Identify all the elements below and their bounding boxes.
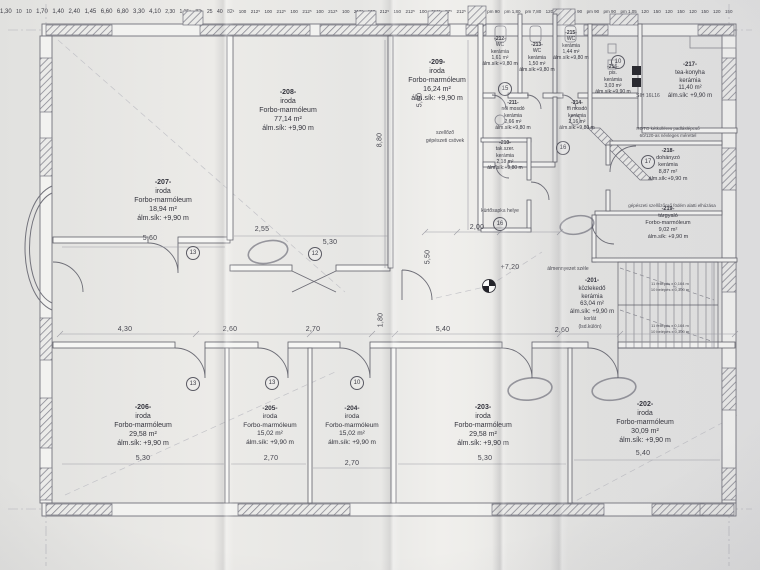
dim-label: 2,00 [470, 224, 484, 231]
stair-note-lower-1: 11 fellépés x 0,164 m [651, 323, 689, 328]
note-sih: SIH 16L16 [636, 93, 660, 99]
room-label-216: -216- pis. kerámia 3,03 m² álm.sík:+9,90… [595, 64, 630, 95]
dim-label: 5,60 [143, 235, 157, 242]
dim-label: 2,70 [264, 455, 278, 462]
dim-label: 1,80 [378, 313, 385, 327]
room-label-210: -210- tak.szer. kerámia 2,18 m² álm.sík:… [487, 140, 522, 171]
stair-note-lower-2: 10 belépés x 0,300 m [651, 329, 689, 334]
dim-label: 2,70 [306, 326, 320, 333]
level-marker-icon [483, 280, 496, 293]
note-ceiling-edge: álmennyezet széle [547, 266, 588, 272]
dim-label: 8,80 [377, 133, 384, 147]
note-rail-line1: korlát [584, 316, 596, 322]
room-label-202: -202- iroda Forbo-marmóleum 30,09 m² álm… [616, 400, 674, 445]
door-number-badge: 12 [308, 247, 322, 261]
staircase [618, 262, 718, 348]
dim-label: 2,60 [223, 326, 237, 333]
door-number-badge: 13 [186, 377, 200, 391]
floor-plan-linework [0, 0, 760, 570]
room-id: -207- [134, 178, 192, 187]
door-number-badge: 10 [611, 55, 625, 69]
room-label-201: -201- közlekedő kerámia 63,04 m² álm.sík… [570, 278, 614, 317]
dim-label: 5,30 [323, 239, 337, 246]
note-rail-line2: (lsd.külön) [578, 324, 601, 330]
room-label-218: -218- dohányzó kerámia 8,87 m² álm.sík:+… [649, 148, 688, 182]
room-label-206: -206- iroda Forbo-marmóleum 29,58 m² álm… [114, 403, 172, 448]
room-label-213: -213- WC kerámia 1,50 m² álm.sík:+9,80 m [519, 42, 554, 73]
level-value: +7,20 [501, 264, 520, 271]
dim-label: 2,55 [255, 226, 269, 233]
dim-label: 5,40 [436, 326, 450, 333]
room-label-214: -214- ffi mosdó kerámia 2,16 m² álm.sík:… [559, 100, 594, 131]
door-number-badge: 13 [265, 376, 279, 390]
dim-label: 5,60 [417, 93, 424, 107]
door-number-badge: 13 [186, 246, 200, 260]
note-vent-line1: szellőző [436, 130, 454, 136]
room-label-208: -208- iroda Forbo-marmóleum 77,14 m² álm… [259, 88, 317, 133]
door-number-badge: 16 [556, 141, 570, 155]
door-number-badge: 16 [493, 217, 507, 231]
note-roto-line2: 60/120-as névleges mérettel [640, 133, 697, 138]
doors [53, 95, 636, 378]
note-roto-line1: ROTO kétkolléres padláslépcső [636, 126, 699, 131]
dim-label: 4,30 [118, 326, 132, 333]
room-label-204: -204- iroda Forbo-marmóleum 15,02 m² álm… [325, 405, 378, 447]
dim-label: 2,60 [555, 327, 569, 334]
note-duct: gépészeti szellőzőcső födém alatti elhúz… [628, 203, 716, 208]
note-vent-line2: gépészeti csövek [426, 138, 464, 144]
floor-plan-photo: -207- iroda Forbo-marmóleum 18,94 m² álm… [0, 0, 760, 570]
dim-label: 5,50 [425, 250, 432, 264]
dim-label: 2,70 [345, 460, 359, 467]
dim-label: 5,40 [636, 450, 650, 457]
stair-note-upper-2: 10 belépés x 0,300 m [651, 287, 689, 292]
dim-label: 5,30 [136, 455, 150, 462]
room-label-212: -212- WC kerámia 1,61 m² álm.sík:+9,80 m [482, 36, 517, 67]
room-label-211: -211- női mosdó kerámia 2,66 m² álm.sík:… [495, 100, 530, 131]
room-label-215: -215- WC kerámia 1,44 m² álm.sík:+9,80 m [553, 30, 588, 61]
stair-note-upper-1: 11 fellépés x 0,164 m [651, 281, 689, 286]
room-label-203: -203- iroda Forbo-marmóleum 29,58 m² álm… [454, 403, 512, 448]
room-label-219: -219- tárgyaló Forbo-marmóleum 9,02 m² á… [645, 206, 690, 240]
door-number-badge: 15 [498, 82, 512, 96]
door-number-badge: 10 [350, 376, 364, 390]
dim-label: 5,30 [478, 455, 492, 462]
note-chimney-cap: kürtősapka helye [481, 208, 519, 214]
room-label-217: -217- tea-konyha kerámia 11,40 m² álm.sí… [668, 62, 712, 101]
room-label-207: -207- iroda Forbo-marmóleum 18,94 m² álm… [134, 178, 192, 223]
room-label-205: -205- iroda Forbo-marmóleum 15,02 m² álm… [243, 405, 296, 447]
door-number-badge: 17 [641, 155, 655, 169]
